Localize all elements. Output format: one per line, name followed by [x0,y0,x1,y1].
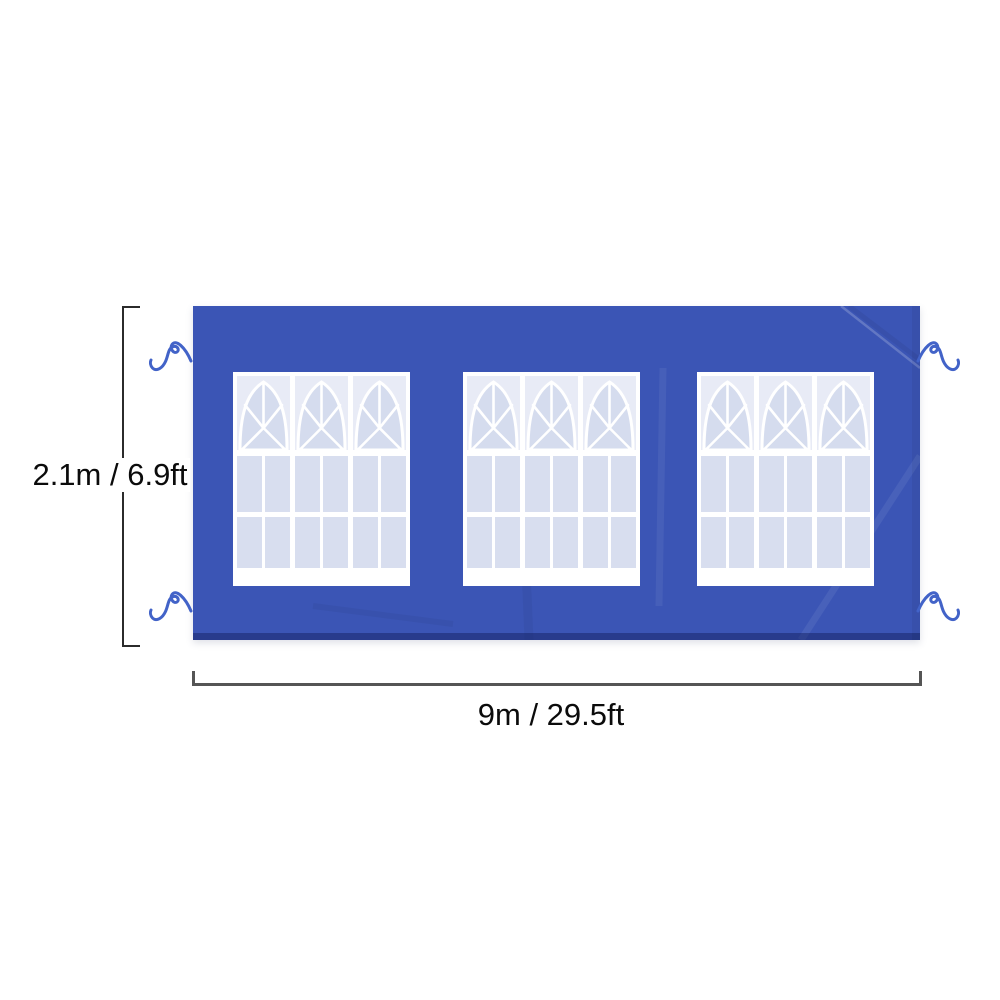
windows-layer [193,306,920,640]
corner-tie-top-left-icon [149,334,193,382]
width-dimension-line [192,671,922,686]
corner-tie-bottom-right-icon [916,584,960,632]
cathedral-window-graphic [463,372,640,586]
tent-sidewall-panel [193,306,920,640]
corner-tie-top-right-icon [916,334,960,382]
corner-tie-bottom-left-icon [149,584,193,632]
window-panel-2 [463,372,640,586]
product-diagram-canvas: 2.1m / 6.9ft 9m / 29.5ft [0,0,1000,1000]
cathedral-window-graphic [697,372,874,586]
window-panel-3 [697,372,874,586]
cathedral-window-graphic [233,372,410,586]
height-dimension-label: 2.1m / 6.9ft [30,458,190,492]
window-panel-1 [233,372,410,586]
width-dimension-label: 9m / 29.5ft [186,698,916,732]
